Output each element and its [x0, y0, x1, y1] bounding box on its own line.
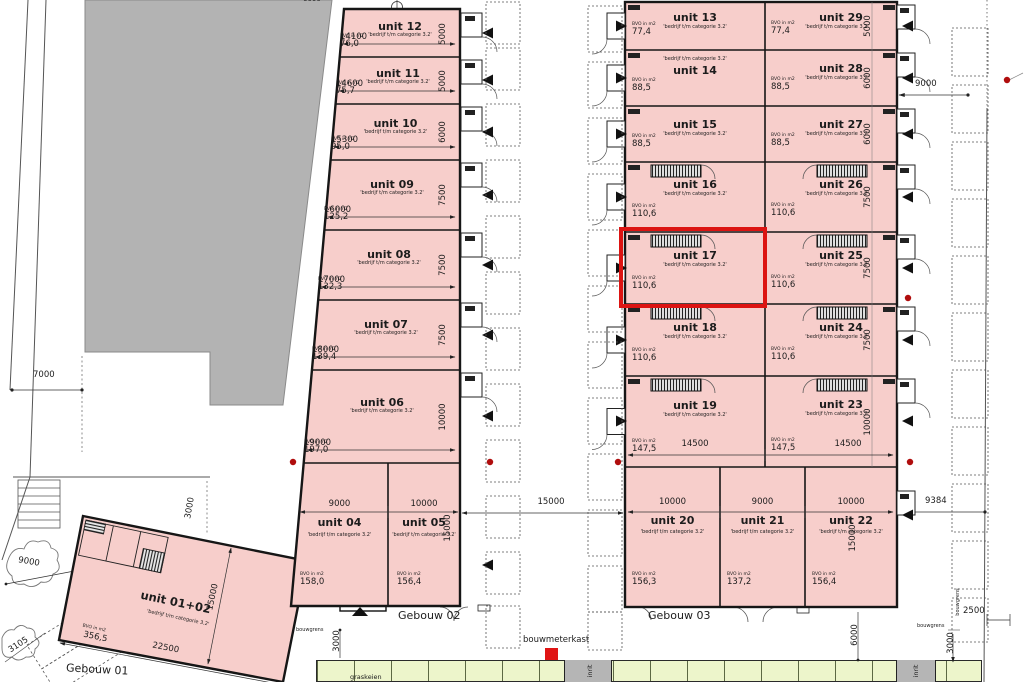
unit-depth-dim: 6000: [864, 122, 874, 146]
storage-bays: [18, 480, 60, 528]
unit-bvo-value: 88,5: [771, 83, 790, 92]
unit-category: 'bedrijf t/m categorie 3.2': [304, 409, 460, 415]
unit-28-region[interactable]: unit 28'bedrijf t/m categorie 3.2'BVO in…: [765, 50, 897, 106]
dim-right-3000: 3000: [946, 630, 956, 656]
unit-27-region[interactable]: unit 27'bedrijf t/m categorie 3.2'BVO in…: [765, 106, 897, 162]
dim-bottom-3000: 3000: [332, 628, 342, 654]
unit-category: 'bedrijf t/m categorie 3.2': [625, 192, 765, 198]
unit-width-dim: 10000: [388, 500, 460, 509]
unit-bvo-value: 110,6: [771, 353, 795, 362]
unit-name: unit 28: [785, 63, 897, 75]
bouwmeterkast-label: bouwmeterkast: [523, 636, 589, 645]
unit-bvo-value: 77,4: [632, 28, 651, 37]
unit-bvo-value: 76,0: [340, 40, 448, 49]
unit-17-region[interactable]: unit 17'bedrijf t/m categorie 3.2'BVO in…: [625, 232, 765, 304]
unit-18-region[interactable]: unit 18'bedrijf t/m categorie 3.2'BVO in…: [625, 304, 765, 376]
unit-05-region[interactable]: 10000unit 05'bedrijf t/m categorie 3.2'B…: [388, 463, 460, 606]
unit-depth-dim: 7500: [439, 323, 449, 347]
unit-width-dim: 10000: [625, 498, 720, 507]
dim-left-7000: 7000: [33, 371, 55, 380]
red-reference-dot: [905, 295, 911, 301]
unit-bvo-value: 147,5: [771, 444, 795, 453]
red-reference-dot: [615, 459, 621, 465]
red-reference-dot: [1004, 77, 1010, 83]
gebouw03-label: Gebouw 03: [648, 610, 710, 622]
unit-bvo-value: 197,0: [304, 446, 448, 455]
unit-name: unit 29: [785, 12, 897, 24]
unit-name: unit 14: [625, 65, 765, 77]
unit-name: unit 18: [625, 322, 765, 334]
unit-depth-dim: 15000: [444, 515, 454, 541]
unit-20-region[interactable]: 10000unit 20'bedrijf t/m categorie 3.2'B…: [625, 467, 720, 607]
unit-category: 'bedrijf t/m categorie 3.2': [777, 192, 897, 198]
unit-category: 'bedrijf t/m categorie 3.2': [777, 263, 897, 269]
unit-29-region[interactable]: unit 29'bedrijf t/m categorie 3.2'BVO in…: [765, 2, 897, 50]
unit-10-region[interactable]: unit 10'bedrijf t/m categorie 3.2'15300B…: [331, 104, 460, 160]
red-reference-dot: [487, 459, 493, 465]
unit-name: unit 19: [625, 400, 765, 412]
dim-top-6000: 6000: [303, 0, 321, 4]
unit-bvo-value: 156,3: [632, 578, 656, 587]
unit-bvo-value: 125,2: [324, 213, 448, 222]
dim-mid-15000: 15000: [516, 498, 586, 507]
unit-bvo-value: 110,6: [632, 282, 656, 291]
unit-category: 'bedrijf t/m categorie 3.2': [777, 412, 897, 418]
unit-bvo-value: 110,6: [632, 210, 656, 219]
unit-bvo-value: 95,0: [331, 143, 448, 152]
unit-depth-dim: 7500: [864, 185, 874, 209]
unit-bvo-value: 88,5: [632, 140, 651, 149]
unit-bvo-value: 88,5: [632, 84, 651, 93]
unit-category: 'bedrijf t/m categorie 3.2': [625, 57, 765, 63]
unit-name: unit 20: [625, 515, 720, 527]
unit-bvo-value: 156,4: [812, 578, 836, 587]
unit-bvo-value: 156,4: [397, 578, 421, 587]
unit-bvo-value: 132,3: [318, 283, 448, 292]
dim-bottom-6000: 6000: [850, 622, 860, 648]
unit-23-region[interactable]: unit 23'bedrijf t/m categorie 3.2'BVO in…: [765, 376, 897, 467]
bouwgrens-label: bouwgrens: [954, 585, 962, 619]
dim-right-2500: 2500: [963, 607, 985, 616]
unit-name: unit 21: [720, 515, 805, 527]
inrit-label: inrit: [910, 658, 922, 682]
unit-06-region[interactable]: unit 06'bedrijf t/m categorie 3.2'19000B…: [304, 370, 460, 463]
bouwgrens-label: bouwgrens: [917, 624, 944, 630]
bouwmeterkast-marker: [545, 648, 558, 660]
unit-category: 'bedrijf t/m categorie 3.2': [625, 530, 720, 536]
unit-22-region[interactable]: 10000unit 22'bedrijf t/m categorie 3.2'B…: [805, 467, 897, 607]
unit-bvo-value: 75,7: [336, 87, 448, 96]
gebouw02-label: Gebouw 02: [398, 610, 460, 622]
unit-04-region[interactable]: 9000unit 04'bedrijf t/m categorie 3.2'BV…: [291, 463, 388, 606]
unit-13-region[interactable]: unit 13'bedrijf t/m categorie 3.2'BVO in…: [625, 2, 765, 50]
unit-category: 'bedrijf t/m categorie 3.2': [777, 76, 897, 82]
unit-name: unit 24: [785, 322, 897, 334]
unit-25-region[interactable]: unit 25'bedrijf t/m categorie 3.2'BVO in…: [765, 232, 897, 304]
unit-width-dim: 9000: [291, 500, 388, 509]
unit-depth-dim: 15000: [849, 525, 859, 551]
unit-09-region[interactable]: unit 09'bedrijf t/m categorie 3.2'16000B…: [324, 160, 460, 230]
inrit-label: inrit: [584, 658, 596, 682]
dim-right-9384: 9384: [925, 497, 947, 506]
unit-depth-dim: 10000: [864, 410, 874, 434]
unit-name: unit 16: [625, 179, 765, 191]
unit-14-region[interactable]: unit 14'bedrijf t/m categorie 3.2'BVO in…: [625, 50, 765, 106]
unit-name: unit 15: [625, 119, 765, 131]
unit-bvo-value: 88,5: [771, 139, 790, 148]
unit-depth-dim: 7500: [864, 328, 874, 352]
unit-depth-dim: 6000: [439, 120, 449, 144]
unit-depth-dim: 5000: [439, 69, 449, 93]
unit-depth-dim: 5000: [864, 14, 874, 38]
unit-depth-dim: 7500: [439, 253, 449, 277]
unit-width-dim: 14500: [813, 440, 883, 449]
unit-bvo-value: 137,2: [727, 578, 751, 587]
existing-gray-building: [85, 0, 332, 405]
unit-11-region[interactable]: unit 11'bedrijf t/m categorie 3.2'14600B…: [336, 57, 460, 104]
unit-category: 'bedrijf t/m categorie 3.2': [625, 263, 765, 269]
unit-21-region[interactable]: 9000unit 21'bedrijf t/m categorie 3.2'BV…: [720, 467, 805, 607]
unit-bvo-value: 110,6: [632, 354, 656, 363]
unit-26-region[interactable]: unit 26'bedrijf t/m categorie 3.2'BVO in…: [765, 162, 897, 232]
unit-width-dim: 10000: [805, 498, 897, 507]
unit-bvo-value: 77,4: [771, 27, 790, 36]
unit-name: unit 25: [785, 250, 897, 262]
dim-right-9000: 9000: [915, 80, 937, 89]
unit-bvo-value: 147,5: [632, 445, 656, 454]
unit-category: 'bedrijf t/m categorie 3.2': [625, 335, 765, 341]
unit-category: 'bedrijf t/m categorie 3.2': [625, 413, 765, 419]
unit-depth-dim: 10000: [439, 405, 449, 429]
unit-depth-dim: 5000: [439, 22, 449, 46]
unit-name: unit 23: [785, 399, 897, 411]
unit-name: unit 27: [785, 119, 897, 131]
unit-bvo-value: 110,6: [771, 209, 795, 218]
unit-07-region[interactable]: unit 07'bedrijf t/m categorie 3.2'18000B…: [312, 300, 460, 370]
graskeien-label: graskeien: [350, 674, 382, 681]
unit-19-region[interactable]: unit 19'bedrijf t/m categorie 3.2'BVO in…: [625, 376, 765, 467]
unit-depth-dim: 6000: [864, 66, 874, 90]
unit-bvo-value: 139,4: [312, 353, 448, 362]
unit-depth-dim: 7500: [864, 256, 874, 280]
red-reference-dot: [907, 459, 913, 465]
unit-15-region[interactable]: unit 15'bedrijf t/m categorie 3.2'BVO in…: [625, 106, 765, 162]
unit-category: 'bedrijf t/m categorie 3.2': [777, 335, 897, 341]
unit-name: unit 26: [785, 179, 897, 191]
unit-depth-dim: 7500: [439, 183, 449, 207]
unit-category: 'bedrijf t/m categorie 3.2': [291, 533, 388, 539]
site-plan: 6000 7000 3000 9000 3105 15000 9000 9384…: [0, 0, 1024, 682]
unit-08-region[interactable]: unit 08'bedrijf t/m categorie 3.2'17000B…: [318, 230, 460, 300]
unit-16-region[interactable]: unit 16'bedrijf t/m categorie 3.2'BVO in…: [625, 162, 765, 232]
unit-bvo-value: 158,0: [300, 578, 324, 587]
unit-name: unit 04: [291, 517, 388, 529]
unit-width-dim: 14500: [655, 440, 735, 449]
unit-category: 'bedrijf t/m categorie 3.2': [777, 132, 897, 138]
unit-category: 'bedrijf t/m categorie 3.2': [777, 25, 897, 31]
unit-24-region[interactable]: unit 24'bedrijf t/m categorie 3.2'BVO in…: [765, 304, 897, 376]
unit-name: unit 17: [625, 250, 765, 262]
unit-category: 'bedrijf t/m categorie 3.2': [720, 530, 805, 536]
unit-bvo-value: 110,6: [771, 281, 795, 290]
unit-width-dim: 9000: [720, 498, 805, 507]
unit-12-region[interactable]: unit 12'bedrijf t/m categorie 3.2'14100B…: [340, 10, 460, 57]
